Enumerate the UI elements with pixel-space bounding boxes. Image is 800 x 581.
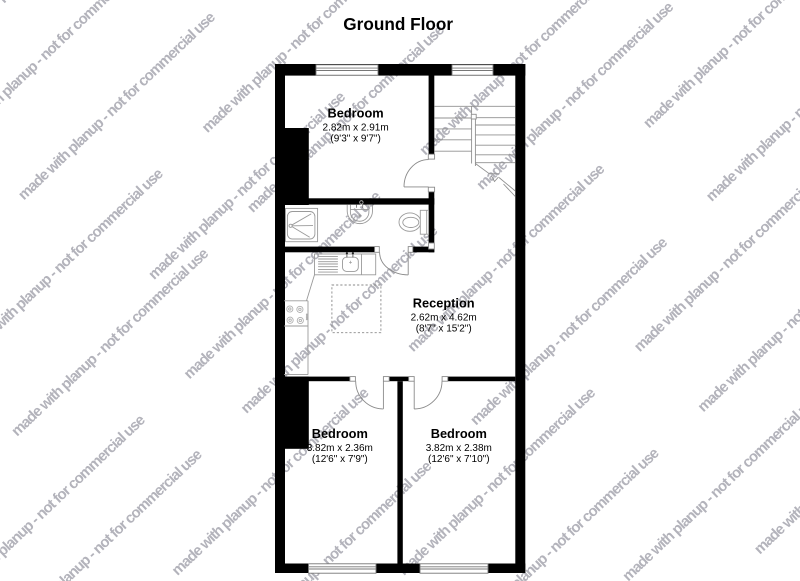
svg-text:3.82m x 2.36m: 3.82m x 2.36m bbox=[307, 443, 373, 454]
svg-text:2.82m x 2.91m: 2.82m x 2.91m bbox=[323, 122, 389, 133]
svg-text:3.82m x 2.38m: 3.82m x 2.38m bbox=[426, 443, 492, 454]
svg-text:(12'6" x 7'10"): (12'6" x 7'10") bbox=[428, 454, 490, 465]
svg-text:Bedroom: Bedroom bbox=[431, 426, 487, 441]
svg-text:(8'7" x 15'2"): (8'7" x 15'2") bbox=[416, 323, 472, 334]
svg-text:Bedroom: Bedroom bbox=[312, 426, 368, 441]
svg-text:(9'3" x 9'7"): (9'3" x 9'7") bbox=[330, 134, 380, 145]
svg-text:Ground Floor: Ground Floor bbox=[343, 14, 453, 34]
svg-text:Bedroom: Bedroom bbox=[328, 106, 384, 121]
svg-text:2.62m x 4.62m: 2.62m x 4.62m bbox=[411, 312, 477, 323]
svg-text:Reception: Reception bbox=[413, 296, 475, 311]
svg-text:(12'6" x 7'9"): (12'6" x 7'9") bbox=[312, 454, 368, 465]
